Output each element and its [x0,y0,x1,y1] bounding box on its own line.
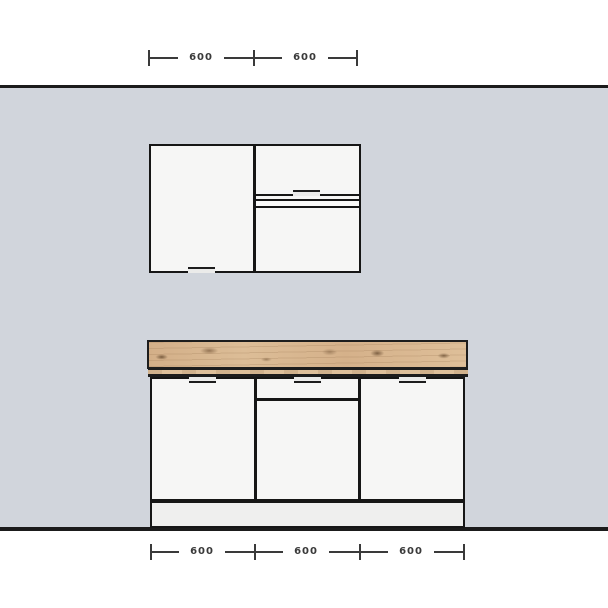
dimension-label: 600 [388,545,434,559]
dimension-label: 600 [178,51,224,65]
dimension-tick [148,50,150,66]
cabinet-gap-strip [256,199,359,208]
dimension-tick [254,544,256,560]
dimension-label: 600 [282,51,328,65]
dimension-tick [359,544,361,560]
wall-cabinet-right-flap[interactable] [256,146,359,194]
kitchen-elevation-drawing: 600 600 600 600 600 [0,0,608,608]
wall-cabinet-left-door[interactable] [151,146,253,271]
dimension-tick [356,50,358,66]
door-handle-recess [293,190,320,196]
worktop[interactable] [147,340,468,369]
dimension-label: 600 [283,545,329,559]
worktop-edge-strip [148,368,468,377]
plinth[interactable] [150,501,465,528]
dimension-tick [463,544,465,560]
base-right-door[interactable] [361,379,463,499]
dimension-tick [253,50,255,66]
door-handle-recess [294,377,321,383]
dimension-label: 600 [179,545,225,559]
wall-cabinet-right-door[interactable] [256,208,359,271]
base-middle-door[interactable] [257,401,358,499]
base-left-door[interactable] [152,379,254,499]
door-handle-recess [399,377,426,383]
dimension-tick [150,544,152,560]
door-handle-recess [189,377,216,383]
